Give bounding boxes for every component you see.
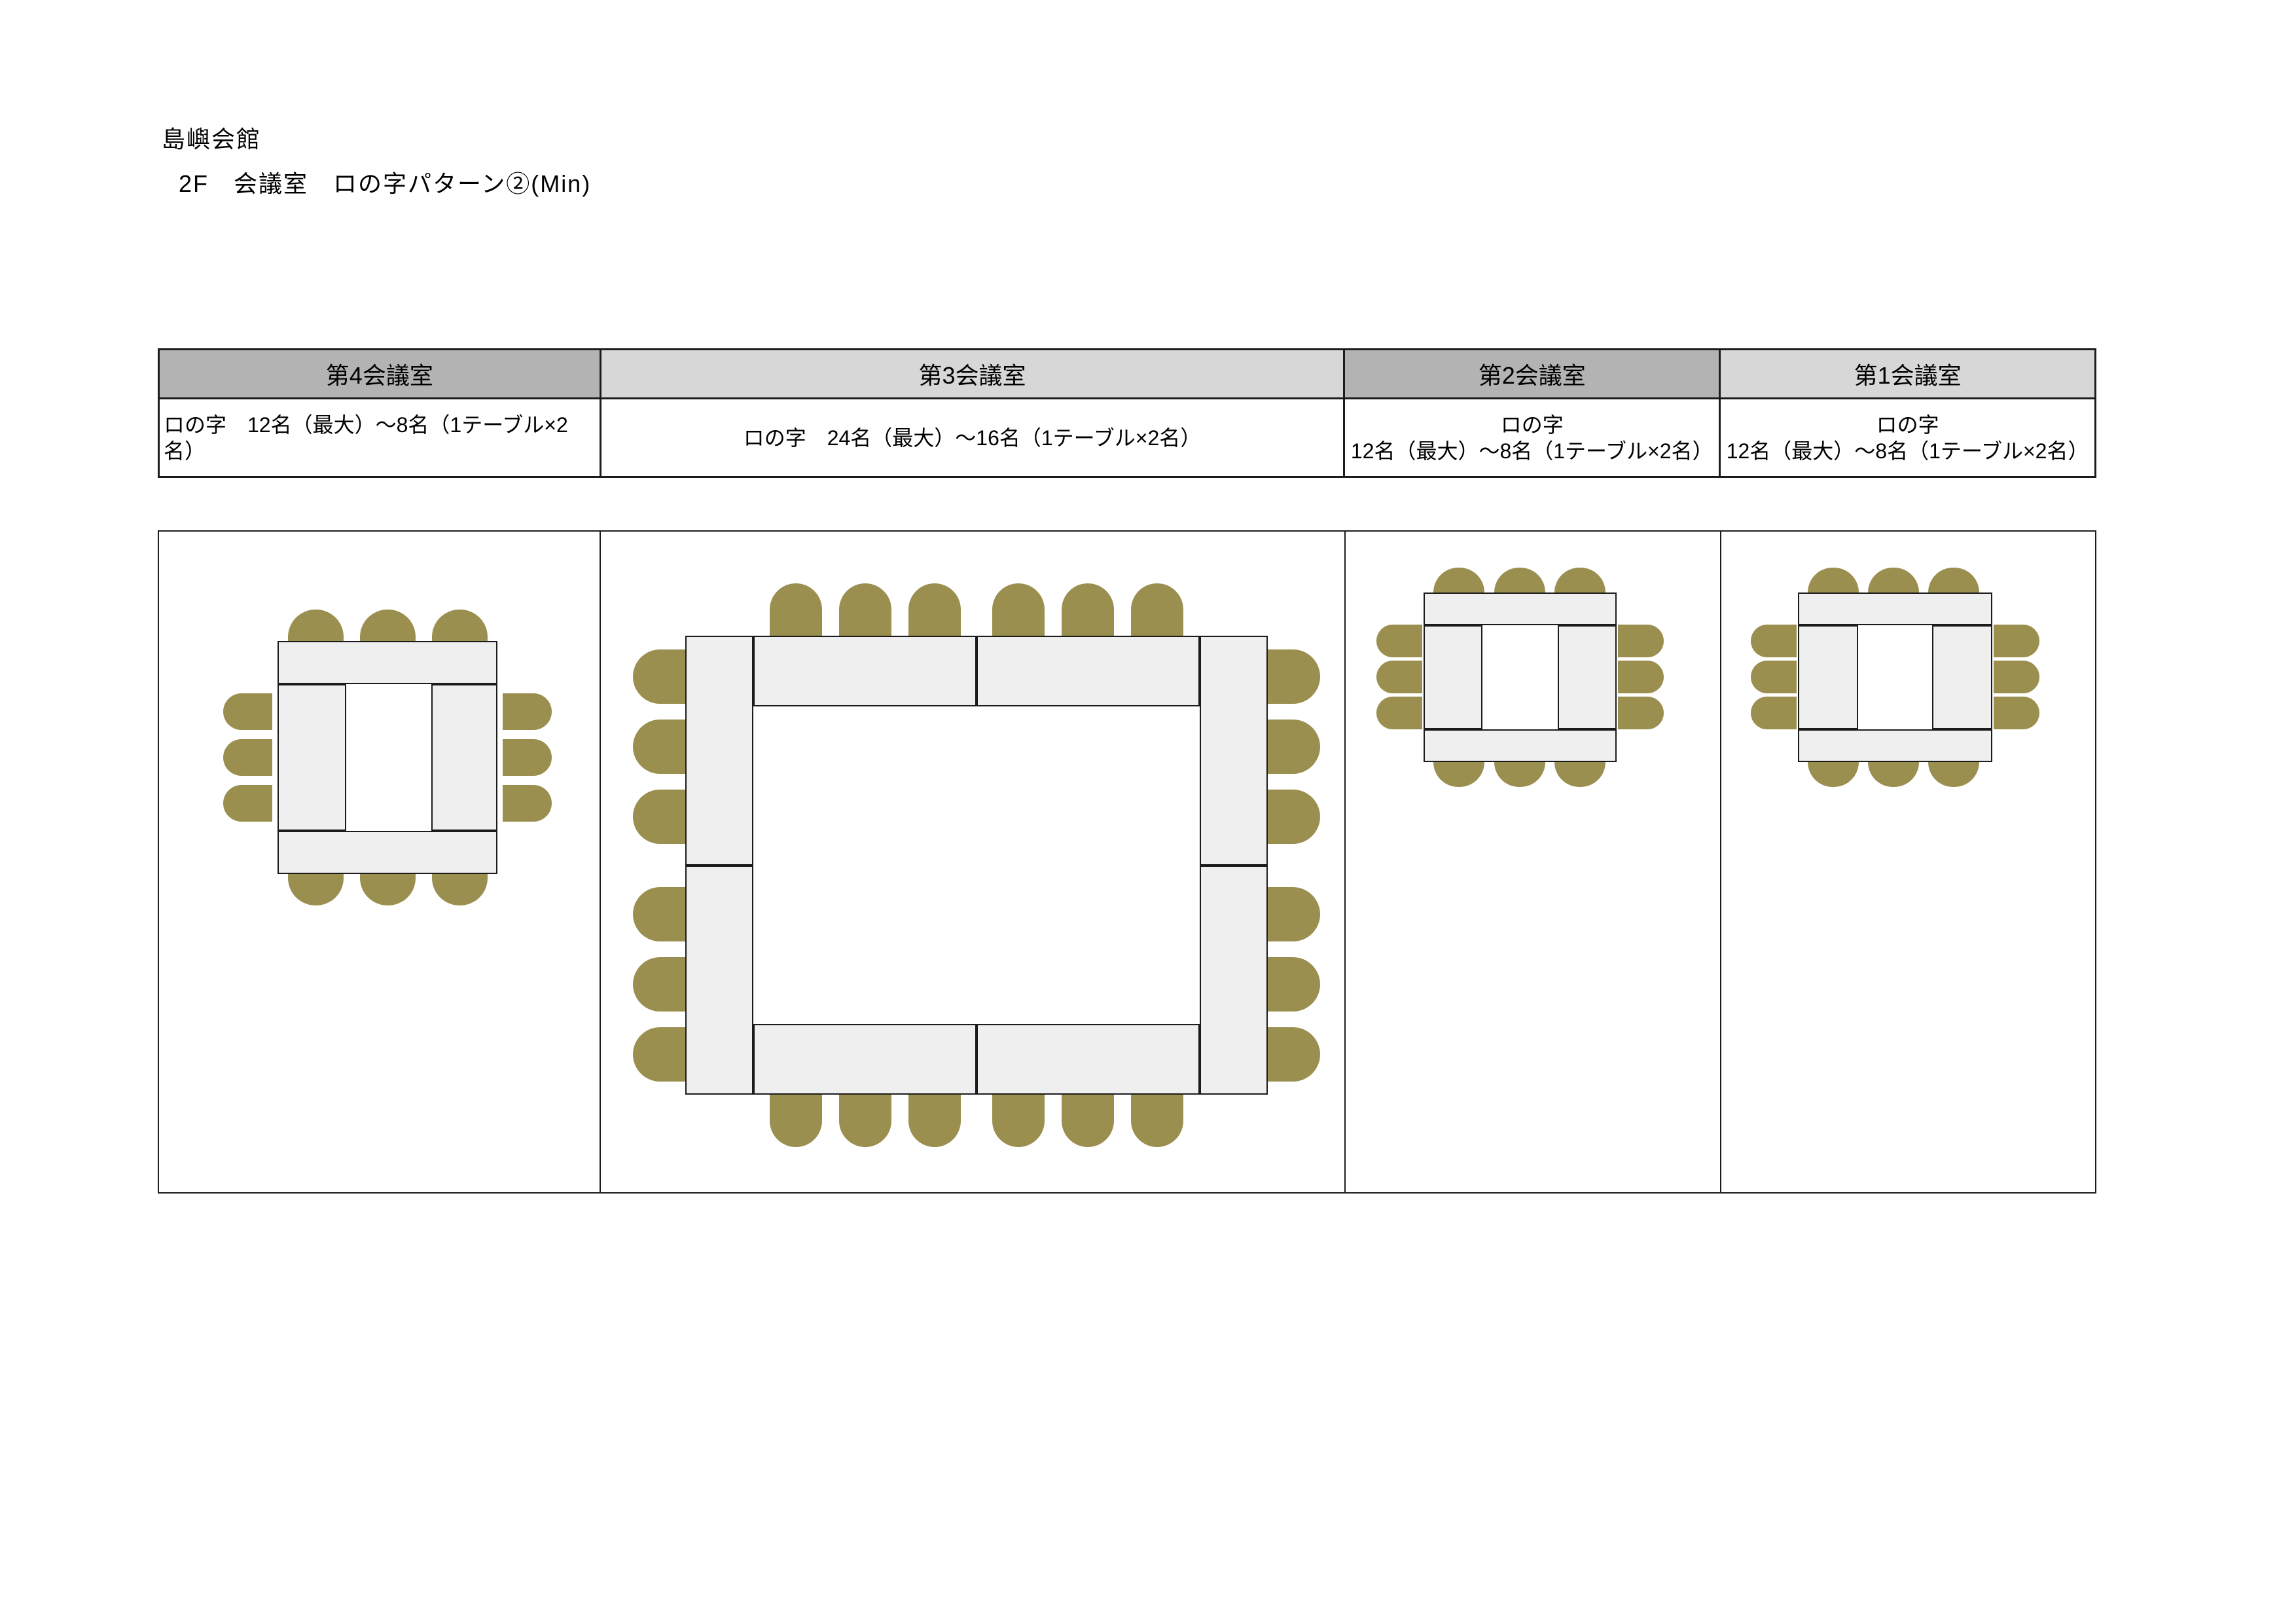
room-header-4: 第4会議室	[160, 350, 601, 399]
meeting-table	[1424, 625, 1482, 729]
chair	[1751, 625, 1797, 657]
chair	[503, 693, 552, 730]
chair	[288, 874, 344, 905]
room-info-2: ロの字12名（最大）～8名（1テーブル×2名）	[1345, 399, 1721, 476]
chair	[1062, 1095, 1114, 1147]
chair	[1268, 887, 1320, 941]
room-header-1: 第1会議室	[1721, 350, 2094, 399]
meeting-table	[977, 636, 1200, 706]
meeting-table	[1798, 593, 1992, 625]
chair	[503, 739, 552, 776]
chair	[1494, 762, 1545, 787]
room-box-room-4	[159, 532, 601, 1192]
chair	[1131, 583, 1183, 636]
meeting-table	[685, 866, 753, 1095]
chair	[1808, 762, 1859, 787]
chair	[223, 739, 272, 776]
chair	[633, 1027, 685, 1082]
chair	[1618, 697, 1664, 729]
chair	[1494, 568, 1545, 593]
chair	[1928, 568, 1979, 593]
chair	[1994, 697, 2039, 729]
page: 島嶼会館 2F 会議室 ロの字パターン②(Min) 第4会議室第3会議室第2会議…	[0, 0, 2296, 1623]
info-table: 第4会議室第3会議室第2会議室第1会議室ロの字 12名（最大）～8名（1テーブル…	[158, 348, 2096, 478]
chair	[1554, 568, 1605, 593]
chair	[633, 649, 685, 704]
chair	[1268, 957, 1320, 1012]
chair	[839, 1095, 891, 1147]
chair	[1376, 661, 1422, 693]
document-title: 島嶼会館	[162, 120, 261, 155]
room-box-room-3	[601, 532, 1345, 1192]
meeting-table	[1798, 625, 1858, 729]
meeting-table	[685, 636, 753, 866]
room-header-2: 第2会議室	[1345, 350, 1721, 399]
chair	[1868, 568, 1919, 593]
room-info-line: 12名（最大）～8名（1テーブル×2名）	[1351, 438, 1713, 464]
room-header-3: 第3会議室	[601, 350, 1346, 399]
room-info-4: ロの字 12名（最大）～8名（1テーブル×2名）	[160, 399, 601, 476]
room-info-line: ロの字 12名（最大）～8名（1テーブル×2名）	[164, 412, 598, 464]
chair	[1268, 790, 1320, 844]
chair	[1376, 697, 1422, 729]
chair	[223, 785, 272, 822]
chair	[503, 785, 552, 822]
chair	[1268, 1027, 1320, 1082]
chair	[1554, 762, 1605, 787]
chair	[1433, 568, 1484, 593]
chair	[1994, 661, 2039, 693]
meeting-table	[1558, 625, 1617, 729]
meeting-table	[1424, 729, 1617, 762]
chair	[1618, 661, 1664, 693]
chair	[1062, 583, 1114, 636]
meeting-table	[278, 684, 346, 831]
chair	[839, 583, 891, 636]
document-subtitle: 2F 会議室 ロの字パターン②(Min)	[179, 165, 591, 199]
room-info-line: ロの字	[1501, 412, 1564, 438]
meeting-table	[278, 831, 497, 874]
chair	[633, 720, 685, 774]
chair	[1131, 1095, 1183, 1147]
chair	[908, 583, 961, 636]
chair	[1751, 697, 1797, 729]
chair	[223, 693, 272, 730]
meeting-table	[753, 636, 977, 706]
chair	[992, 583, 1045, 636]
room-info-line: 12名（最大）～8名（1テーブル×2名）	[1727, 438, 2089, 464]
chair	[1928, 762, 1979, 787]
meeting-table	[977, 1024, 1200, 1095]
chair	[432, 610, 488, 641]
chair	[288, 610, 344, 641]
chair	[432, 874, 488, 905]
meeting-table	[1932, 625, 1992, 729]
room-info-line: ロの字 24名（最大）～16名（1テーブル×2名）	[744, 425, 1202, 451]
room-box-room-1	[1721, 532, 2095, 1192]
room-info-line: ロの字	[1876, 412, 1939, 438]
chair	[1376, 625, 1422, 657]
chair	[633, 790, 685, 844]
meeting-table	[1200, 636, 1268, 866]
chair	[1433, 762, 1484, 787]
chair	[1994, 625, 2039, 657]
chair	[1268, 720, 1320, 774]
chair	[633, 957, 685, 1012]
diagram-row	[158, 530, 2096, 1194]
meeting-table	[1798, 729, 1992, 762]
chair	[1618, 625, 1664, 657]
chair	[908, 1095, 961, 1147]
meeting-table	[1424, 593, 1617, 625]
chair	[633, 887, 685, 941]
chair	[360, 874, 416, 905]
room-info-1: ロの字12名（最大）～8名（1テーブル×2名）	[1721, 399, 2094, 476]
chair	[770, 583, 822, 636]
chair	[770, 1095, 822, 1147]
room-box-room-2	[1346, 532, 1721, 1192]
chair	[1808, 568, 1859, 593]
meeting-table	[278, 641, 497, 684]
chair	[1751, 661, 1797, 693]
chair	[1268, 649, 1320, 704]
chair	[1868, 762, 1919, 787]
chair	[992, 1095, 1045, 1147]
room-info-3: ロの字 24名（最大）～16名（1テーブル×2名）	[601, 399, 1346, 476]
meeting-table	[431, 684, 497, 831]
meeting-table	[753, 1024, 977, 1095]
meeting-table	[1200, 866, 1268, 1095]
chair	[360, 610, 416, 641]
